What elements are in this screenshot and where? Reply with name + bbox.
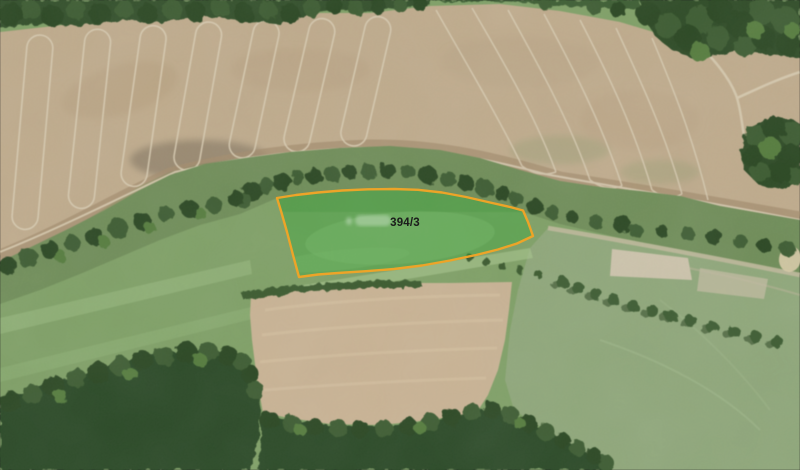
parcel-label: 394/3 [390, 217, 420, 229]
aerial-map-canvas[interactable]: 394/3 [0, 0, 800, 470]
